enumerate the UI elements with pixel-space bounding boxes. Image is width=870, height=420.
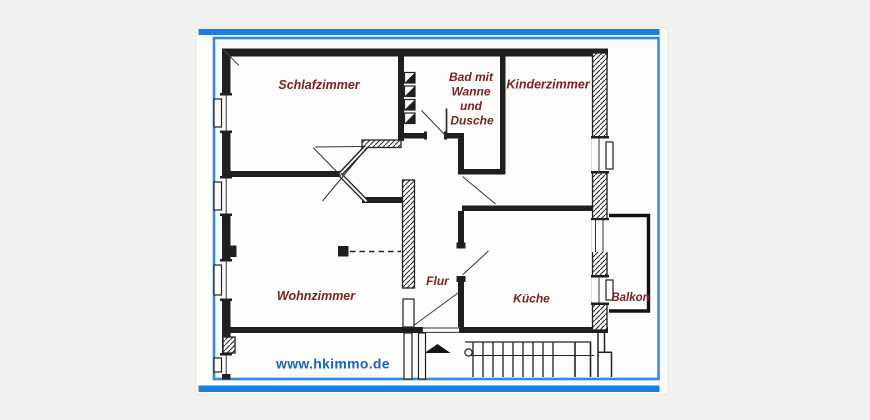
shaft-square	[405, 73, 416, 84]
window-symbol	[214, 259, 232, 301]
window-symbol	[591, 275, 613, 305]
wall-bath-bottom-left	[404, 133, 425, 139]
page-background: Schlafzimmer Bad mit Wanne und Dusche Ki…	[0, 0, 870, 420]
hall-wall	[419, 333, 426, 379]
window-symbol	[591, 136, 613, 174]
wall-bedroom-bottom	[230, 171, 340, 177]
floor-plan-image: Schlafzimmer Bad mit Wanne und Dusche Ki…	[0, 0, 870, 420]
shaft-square	[405, 86, 416, 97]
wall-kinderzimmer-left	[500, 56, 506, 174]
room-label-schlafzimmer: Schlafzimmer	[278, 78, 360, 92]
room-label-bad-line3: und	[460, 99, 483, 113]
entrance-door	[422, 327, 460, 333]
wall-bath-kinderzimmer	[458, 169, 505, 175]
wall-left-bottom-block	[223, 337, 235, 353]
room-label-flur: Flur	[426, 274, 450, 288]
wall-center-short	[362, 197, 408, 203]
wall-kinderzimmer-bottom	[462, 206, 595, 212]
room-label-bad-line1: Bad mit	[449, 70, 494, 84]
wall-bottom-left	[230, 327, 422, 333]
wall-bedroom-bath	[398, 56, 404, 141]
wall-flur-top-vertical	[458, 133, 464, 174]
hall-wall	[404, 333, 412, 379]
window-symbol	[214, 176, 232, 216]
beam-anchor-left	[228, 246, 237, 258]
shaft-square	[405, 113, 416, 124]
beam-anchor-right	[338, 246, 349, 257]
room-label-bad-line4: Dusche	[450, 114, 494, 128]
wall-bottom-right	[460, 327, 608, 333]
kueche-door-jamb	[457, 243, 466, 249]
balcony-door	[591, 218, 609, 252]
wall-kueche-left-upper	[458, 211, 464, 248]
wall-top	[222, 49, 608, 57]
room-label-kinderzimmer: Kinderzimmer	[506, 78, 590, 92]
room-label-bad-line2: Wanne	[451, 85, 490, 99]
frame-bottom-bar	[199, 386, 660, 393]
wall-diagonal-top	[362, 140, 401, 148]
room-label-balkon: Balkon	[611, 292, 649, 304]
frame-top-bar	[199, 29, 660, 35]
bath-door-jamb	[424, 132, 427, 140]
room-label-kueche: Küche	[513, 292, 550, 306]
window-symbol	[214, 93, 232, 133]
kueche-door-jamb	[457, 276, 466, 282]
stair-newel-circle	[465, 349, 472, 356]
wall-flur-wohnzimmer	[403, 180, 415, 288]
wall-kueche-left-lower	[458, 276, 464, 330]
wall-flur-lower	[403, 299, 414, 327]
room-label-wohnzimmer: Wohnzimmer	[277, 289, 356, 303]
shaft-square	[405, 100, 416, 111]
watermark-text: www.hkimmo.de	[275, 356, 390, 372]
